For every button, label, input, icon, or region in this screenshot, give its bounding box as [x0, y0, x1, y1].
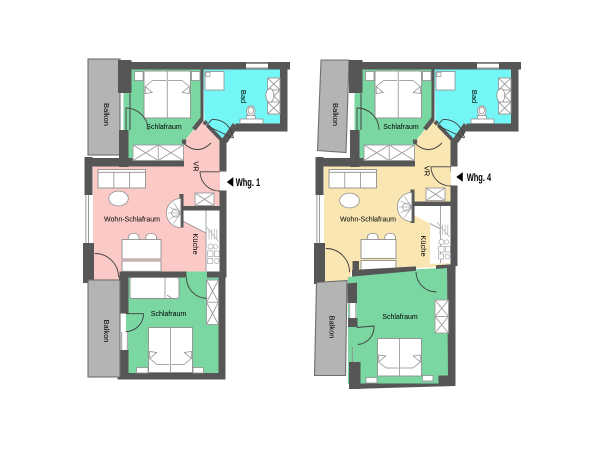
svg-text:Balkon: Balkon — [102, 320, 111, 343]
svg-text:Bad: Bad — [470, 90, 479, 103]
svg-text:Küche: Küche — [419, 235, 428, 256]
svg-text:VR: VR — [423, 166, 432, 177]
svg-text:VR: VR — [192, 161, 201, 172]
svg-text:Whg. 1: Whg. 1 — [236, 177, 261, 189]
svg-text:Wohn-Schlafraum: Wohn-Schlafraum — [104, 217, 160, 224]
svg-text:Schlafraum: Schlafraum — [383, 124, 419, 131]
svg-text:Schlafraum: Schlafraum — [146, 124, 182, 131]
svg-text:Balkon: Balkon — [102, 103, 111, 126]
svg-text:Balkon: Balkon — [328, 316, 337, 339]
svg-text:Wohn-Schlafraum: Wohn-Schlafraum — [340, 217, 396, 224]
svg-text:Schlafraum: Schlafraum — [382, 314, 418, 321]
svg-text:Balkon: Balkon — [331, 103, 340, 126]
svg-text:Whg. 4: Whg. 4 — [467, 172, 492, 184]
svg-text:Bad: Bad — [239, 90, 248, 103]
svg-text:Schlafraum: Schlafraum — [151, 311, 187, 318]
svg-text:Küche: Küche — [191, 233, 200, 254]
